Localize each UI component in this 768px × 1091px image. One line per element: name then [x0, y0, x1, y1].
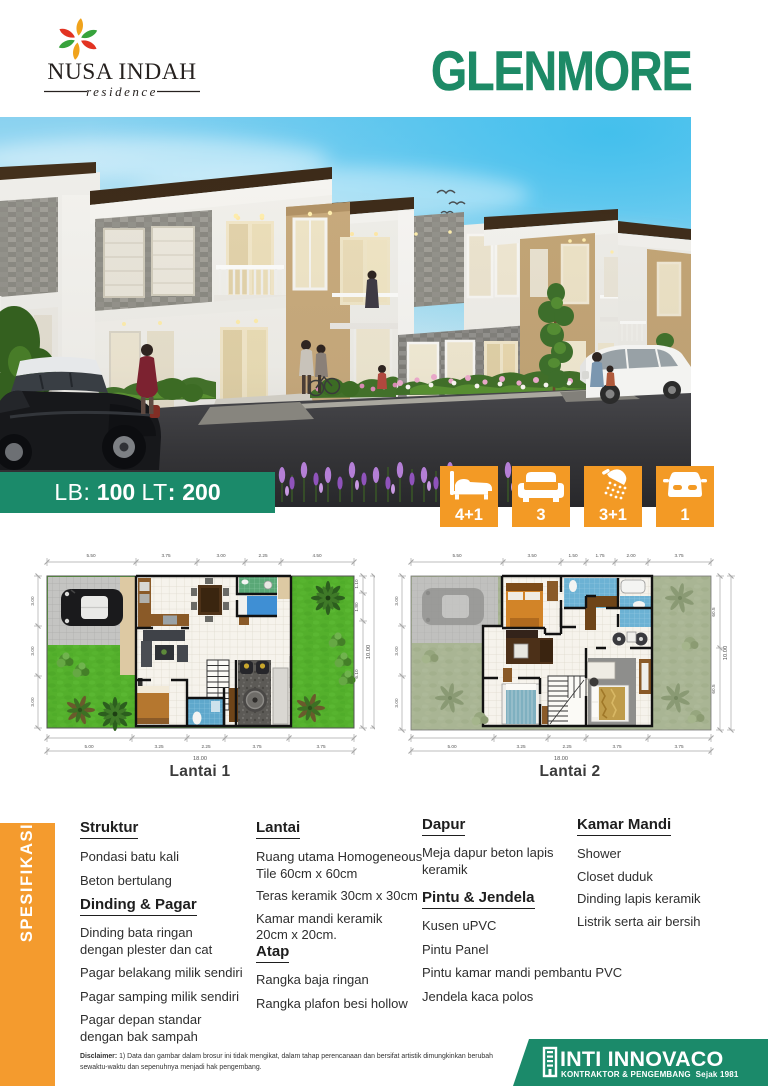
svg-text:3.75: 3.75 — [161, 553, 171, 558]
svg-text:1.50: 1.50 — [568, 553, 578, 558]
svg-text:2.25: 2.25 — [562, 744, 572, 749]
svg-text:3.00: 3.00 — [30, 697, 35, 707]
svg-text:2.25: 2.25 — [258, 553, 268, 558]
svg-text:60.5: 60.5 — [711, 607, 716, 617]
svg-text:5.00: 5.00 — [84, 744, 94, 749]
svg-text:5.50: 5.50 — [452, 553, 462, 558]
svg-text:10.00: 10.00 — [723, 646, 729, 661]
svg-text:3.00: 3.00 — [216, 553, 226, 558]
svg-text:3.75: 3.75 — [252, 744, 262, 749]
svg-text:5.00: 5.00 — [447, 744, 457, 749]
svg-text:INTI INNOVACO: INTI INNOVACO — [560, 1047, 723, 1071]
svg-text:6.10: 6.10 — [354, 669, 359, 679]
svg-text:1.80: 1.80 — [354, 602, 359, 612]
svg-text:18.00: 18.00 — [554, 756, 568, 762]
svg-text:3.00: 3.00 — [30, 646, 35, 656]
svg-text:3.00: 3.00 — [30, 596, 35, 606]
svg-text:3.25: 3.25 — [154, 744, 164, 749]
svg-text:KONTRAKTOR & PENGEMBANG Sejak: KONTRAKTOR & PENGEMBANG Sejak 1981 — [561, 1070, 739, 1079]
svg-text:60.5: 60.5 — [711, 684, 716, 694]
svg-text:1.75: 1.75 — [595, 553, 605, 558]
svg-text:2.25: 2.25 — [201, 744, 211, 749]
svg-text:3.75: 3.75 — [316, 744, 326, 749]
svg-text:NUSA INDAH: NUSA INDAH — [47, 59, 196, 85]
svg-text:18.00: 18.00 — [193, 756, 207, 762]
svg-text:3.50: 3.50 — [527, 553, 537, 558]
svg-text:2.00: 2.00 — [626, 553, 636, 558]
svg-text:3.00: 3.00 — [394, 646, 399, 656]
svg-text:3.75: 3.75 — [612, 744, 622, 749]
svg-text:1.10: 1.10 — [354, 579, 359, 589]
svg-text:3.25: 3.25 — [516, 744, 526, 749]
svg-text:3.00: 3.00 — [394, 698, 399, 708]
svg-text:10.00: 10.00 — [366, 645, 372, 660]
svg-text:5.50: 5.50 — [86, 553, 96, 558]
svg-text:3.75: 3.75 — [674, 553, 684, 558]
svg-text:3.75: 3.75 — [674, 744, 684, 749]
svg-text:4.50: 4.50 — [312, 553, 322, 558]
svg-text:3.00: 3.00 — [394, 596, 399, 606]
svg-text:residence: residence — [86, 84, 158, 99]
